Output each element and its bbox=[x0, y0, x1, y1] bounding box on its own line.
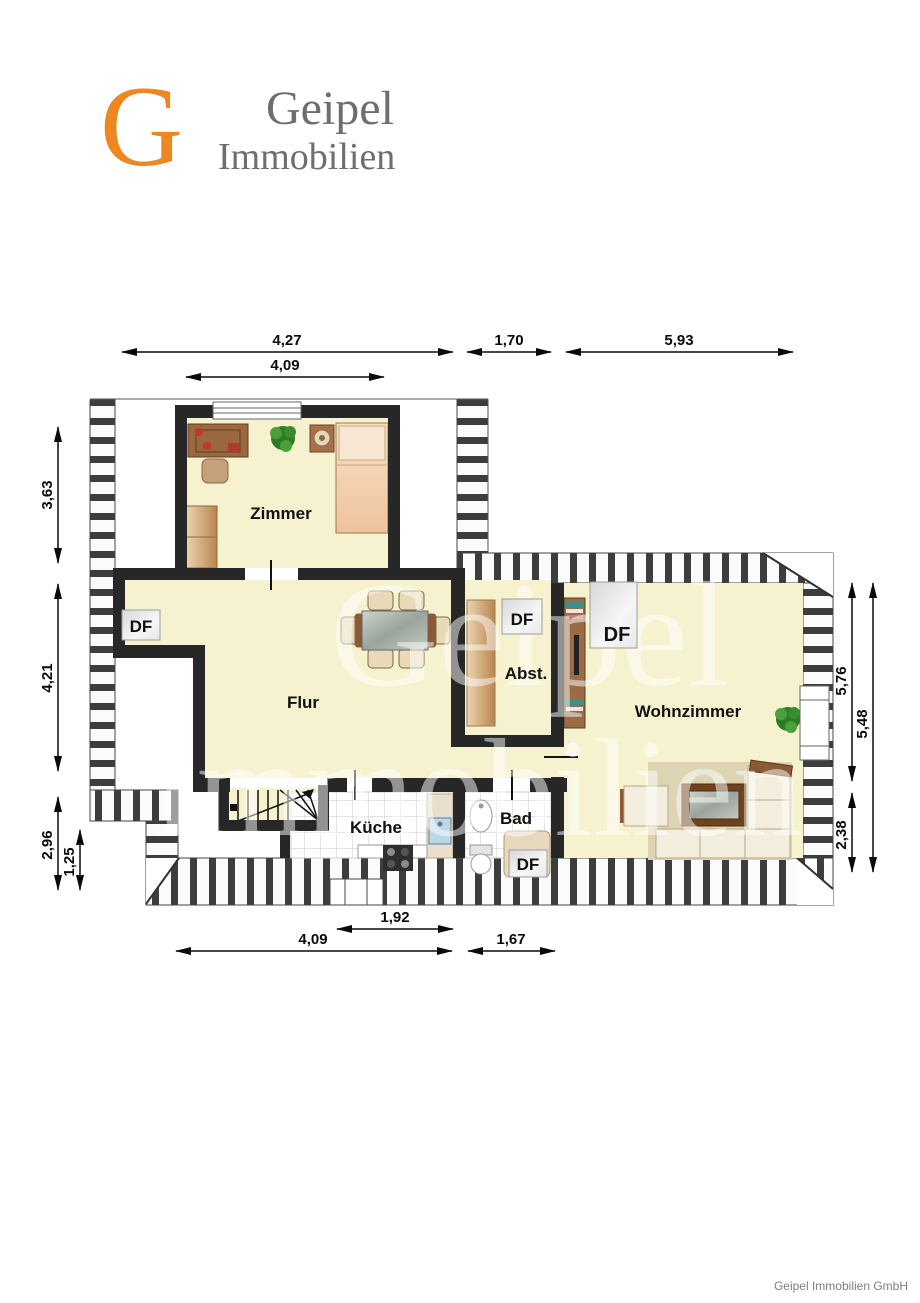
df-box-flur: DF bbox=[122, 610, 160, 640]
watermark-line1: Geipel bbox=[330, 552, 730, 718]
dim-top-3: 5,93 bbox=[664, 332, 693, 349]
dim-right-2: 5,48 bbox=[854, 709, 871, 738]
abst-label: Abst. bbox=[505, 664, 548, 683]
dim-left-2: 4,21 bbox=[39, 663, 56, 692]
df-label-wohnzimmer: DF bbox=[604, 624, 631, 646]
floor-plan-svg: G Geipel Immobilien bbox=[0, 0, 920, 1303]
dim-right-3: 2,38 bbox=[833, 820, 850, 849]
logo-name-top: Geipel bbox=[266, 82, 394, 135]
company-logo: G Geipel Immobilien bbox=[100, 63, 395, 190]
dim-top-1: 4,27 bbox=[272, 332, 301, 349]
zimmer-nightstand bbox=[310, 425, 334, 452]
df-label-abst: DF bbox=[511, 610, 534, 629]
df-label-flur: DF bbox=[130, 617, 153, 636]
watermark-line2: Immobilien bbox=[150, 711, 803, 866]
df-label-bad: DF bbox=[517, 855, 540, 874]
logo-g-letter: G bbox=[100, 63, 183, 190]
kueche-label: Küche bbox=[350, 818, 402, 837]
roof-band-left bbox=[90, 400, 115, 792]
zimmer-bed bbox=[336, 423, 388, 533]
roof-band-wing-right bbox=[457, 400, 488, 555]
zimmer-window bbox=[213, 402, 301, 419]
df-box-wohnzimmer: DF bbox=[590, 582, 637, 648]
zimmer-wardrobe bbox=[186, 506, 217, 568]
flur-label: Flur bbox=[287, 693, 319, 712]
bad-label: Bad bbox=[500, 809, 532, 828]
logo-name-bottom: Immobilien bbox=[218, 136, 395, 178]
dim-right-1: 5,76 bbox=[833, 666, 850, 695]
kueche-window bbox=[330, 879, 383, 905]
footer-company-text: Geipel Immobilien GmbH bbox=[774, 1279, 908, 1293]
dim-left-4: 1,25 bbox=[61, 847, 78, 876]
wohnzimmer-window bbox=[800, 686, 829, 760]
dim-left-1: 3,63 bbox=[39, 480, 56, 509]
dim-top-2: 1,70 bbox=[494, 332, 523, 349]
dim-bottom-3: 1,67 bbox=[496, 931, 525, 948]
dim-left-3: 2,96 bbox=[39, 830, 56, 859]
zimmer-desk bbox=[188, 424, 248, 457]
floor-plan-page: G Geipel Immobilien bbox=[0, 0, 920, 1303]
dim-bottom-2: 4,09 bbox=[298, 931, 327, 948]
dim-bottom-1: 1,92 bbox=[380, 909, 409, 926]
df-box-abst: DF bbox=[502, 599, 542, 634]
dim-top-4: 4,09 bbox=[270, 357, 299, 374]
zimmer-chair bbox=[202, 459, 228, 483]
wohnzimmer-label: Wohnzimmer bbox=[635, 702, 742, 721]
zimmer-label: Zimmer bbox=[250, 504, 312, 523]
df-box-bad: DF bbox=[509, 850, 547, 877]
